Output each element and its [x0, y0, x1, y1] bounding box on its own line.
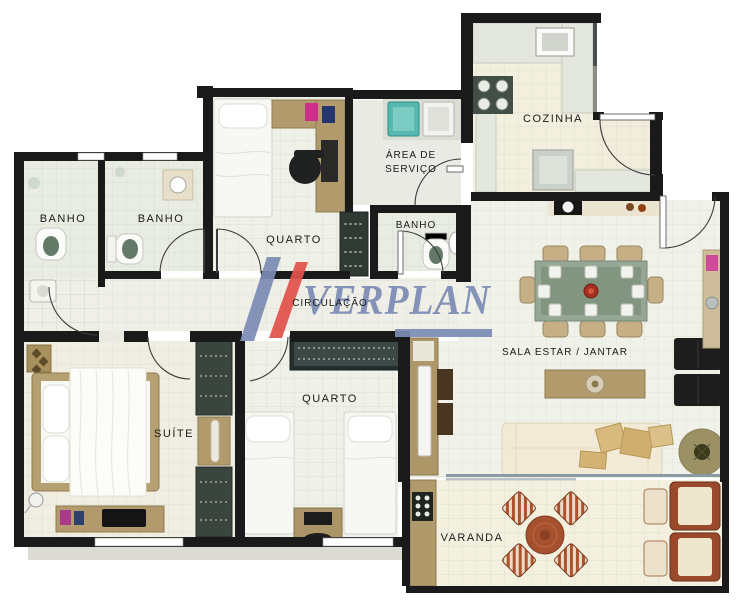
sink-icon — [37, 285, 49, 297]
hall-cabinet — [340, 212, 368, 276]
toilet-icon — [43, 236, 59, 256]
watermark-underline — [395, 329, 492, 337]
label-banho3: BANHO — [396, 220, 437, 231]
floor-lamp-icon — [29, 493, 43, 507]
wardrobe — [196, 341, 232, 415]
entry-console — [548, 199, 663, 216]
window — [143, 153, 177, 160]
window — [323, 538, 393, 546]
laptop-icon — [304, 512, 332, 525]
area-servico-appliances — [383, 98, 461, 140]
picture-icon — [706, 255, 718, 271]
label-area-servico-1: ÁREA DE — [386, 148, 436, 161]
ottoman — [644, 541, 667, 576]
floor-plan: VERPLAN BANHO BANHO QUARTO ÁREA DE SERVI… — [0, 0, 741, 600]
window — [95, 538, 183, 546]
sink-icon — [170, 177, 186, 193]
ottoman — [644, 489, 667, 524]
window — [78, 153, 104, 160]
label-banho1: BANHO — [40, 213, 87, 225]
label-quarto2: QUARTO — [302, 393, 358, 405]
label-area-servico-2: SERVIÇO — [385, 164, 437, 175]
label-sala: SALA ESTAR / JANTAR — [502, 347, 628, 358]
toilet-icon — [122, 239, 138, 259]
tv-icon — [102, 509, 146, 527]
exterior-ledge — [28, 547, 404, 560]
label-banho2: BANHO — [138, 213, 185, 225]
label-quarto1: QUARTO — [266, 234, 322, 246]
label-suite: SUÍTE — [154, 427, 194, 440]
floor-plan-drawing: VERPLAN BANHO BANHO QUARTO ÁREA DE SERVI… — [0, 0, 741, 600]
computer-icon — [321, 140, 338, 182]
label-circulacao: CIRCULAÇÃO — [292, 296, 368, 309]
label-cozinha: COZINHA — [523, 113, 583, 125]
grill-icon — [412, 492, 433, 521]
label-varanda: VARANDA — [441, 532, 504, 544]
stove-icon — [473, 76, 513, 114]
tv-icon — [418, 366, 431, 456]
